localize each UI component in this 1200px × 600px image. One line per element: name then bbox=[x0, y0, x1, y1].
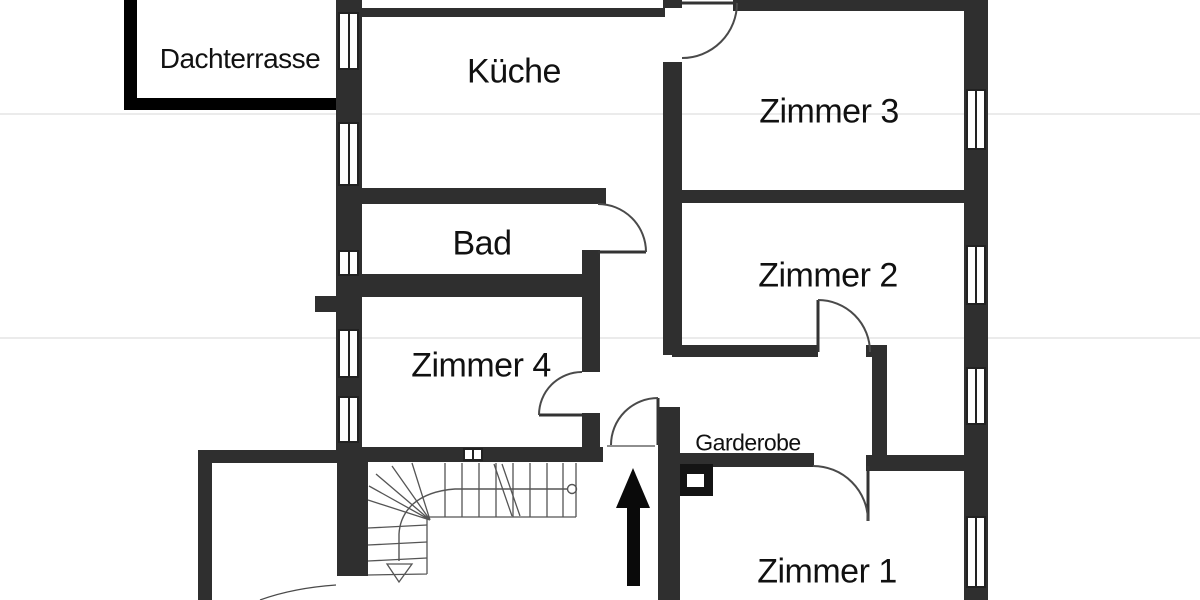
window-bad bbox=[338, 250, 359, 276]
alcove-wall bbox=[872, 355, 887, 456]
room-label-dachterrasse: Dachterrasse bbox=[160, 43, 321, 75]
window-mullion bbox=[348, 252, 350, 274]
window-alcove bbox=[966, 367, 986, 425]
zimmer3-bottom-wall bbox=[663, 190, 988, 203]
room-label-garderobe: Garderobe bbox=[695, 430, 800, 457]
room-label-zimmer4: Zimmer 4 bbox=[411, 347, 551, 386]
window-mullion bbox=[472, 450, 474, 459]
dachterrasse-left-wall bbox=[124, 0, 137, 110]
window-mullion bbox=[975, 247, 977, 303]
bad-top-wall bbox=[362, 188, 606, 204]
zimmer1-door bbox=[813, 466, 868, 521]
floor-plan: Dachterrasse Küche Zimmer 3 Bad Zimmer 2… bbox=[0, 0, 1200, 600]
stairwell-left-wall bbox=[198, 450, 212, 600]
window-mullion bbox=[348, 398, 350, 441]
divider-wall-top-stub bbox=[663, 0, 682, 8]
zimmer4-top-wall bbox=[362, 287, 600, 297]
zimmer1-top-wall bbox=[866, 455, 964, 471]
room-label-kueche: Küche bbox=[467, 53, 561, 92]
bad-door bbox=[598, 204, 646, 252]
window-zimmer3 bbox=[966, 89, 986, 150]
dachterrasse-bottom-wall bbox=[124, 98, 338, 110]
zimmer2-door bbox=[818, 300, 870, 352]
zimmer2-bottom-wall bbox=[672, 345, 818, 357]
stairwell-door-arc bbox=[260, 585, 336, 600]
kueche-top-wall bbox=[362, 8, 665, 17]
window-mullion bbox=[348, 124, 350, 184]
room-label-bad: Bad bbox=[453, 225, 512, 264]
window-mullion bbox=[975, 369, 977, 423]
kueche-zimmer-divider-wall bbox=[663, 62, 682, 355]
window-kueche-lower bbox=[338, 122, 359, 186]
walk-line-start-circle bbox=[568, 485, 577, 494]
stair-divider-wall bbox=[337, 462, 368, 576]
scan-artifact-line bbox=[0, 337, 1200, 339]
entrance-arrow-icon bbox=[616, 468, 650, 586]
window-zimmer4-upper bbox=[338, 329, 359, 378]
scan-artifact-line bbox=[0, 113, 1200, 115]
stair-walk-line bbox=[399, 489, 568, 561]
shaft-notch bbox=[687, 474, 704, 487]
window-zimmer4-lower bbox=[338, 396, 359, 443]
stair-down-arrow bbox=[387, 564, 412, 582]
stair-break-line bbox=[494, 464, 520, 516]
left-wall-pier bbox=[315, 296, 336, 312]
window-stairwell bbox=[463, 448, 483, 461]
window-zimmer1 bbox=[966, 516, 986, 588]
window-kueche-upper bbox=[338, 12, 359, 70]
hall-zimmer1-left-wall bbox=[658, 407, 680, 600]
window-mullion bbox=[348, 14, 350, 68]
window-mullion bbox=[975, 518, 977, 586]
stairwell-top-wall bbox=[198, 450, 338, 463]
window-zimmer2 bbox=[966, 245, 986, 305]
room-label-zimmer1: Zimmer 1 bbox=[757, 553, 897, 592]
window-mullion bbox=[975, 91, 977, 148]
stair-winders bbox=[368, 463, 430, 520]
staircase bbox=[368, 463, 577, 582]
entrance-door bbox=[607, 398, 658, 446]
zimmer3-top-wall bbox=[733, 0, 965, 11]
plan-linework bbox=[0, 0, 1200, 600]
bad-zimmer4-right-wall bbox=[582, 250, 600, 372]
window-mullion bbox=[348, 331, 350, 376]
room-label-zimmer2: Zimmer 2 bbox=[758, 257, 898, 296]
zimmer3-door bbox=[682, 3, 737, 58]
room-label-zimmer3: Zimmer 3 bbox=[759, 93, 899, 132]
